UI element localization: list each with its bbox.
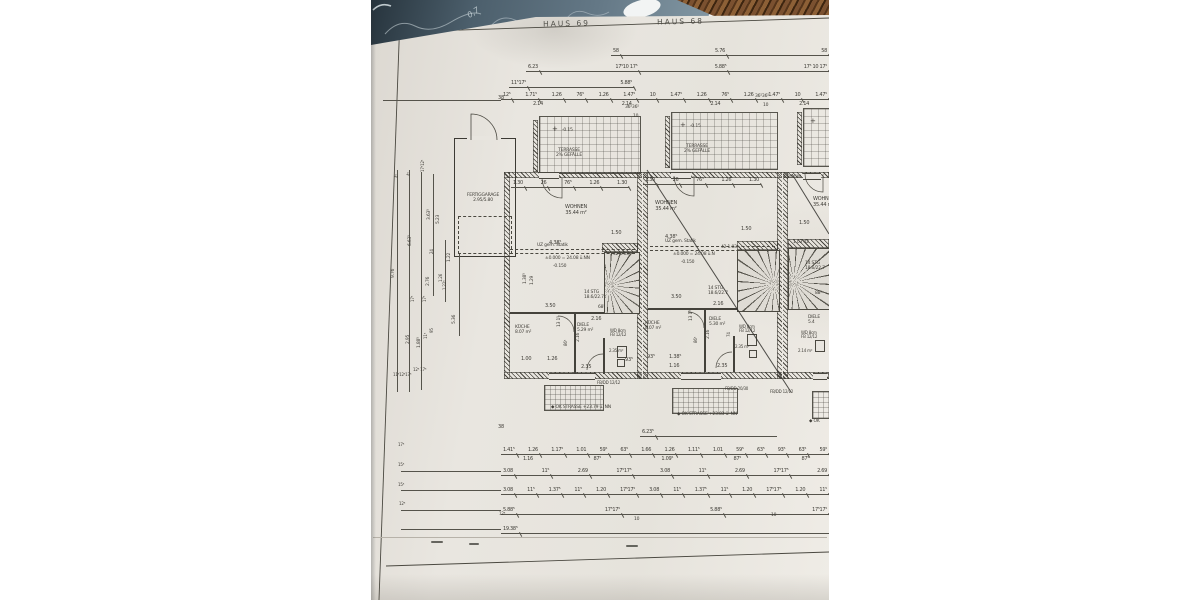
- plan-note: 1.38⁵: [523, 273, 528, 284]
- plan-note: 17⁵: [398, 443, 404, 447]
- plan-note: -0.15: [690, 124, 701, 129]
- plan-note: 13 1⁵: [557, 316, 562, 327]
- plan-note: TERRASSE 2% GEFÄLLE: [675, 144, 719, 154]
- plan-note: +: [810, 118, 816, 126]
- plan-note: 1.50: [741, 227, 751, 233]
- dimension-extension-line: [383, 100, 501, 101]
- dim-row: 19.38⁵: [501, 526, 829, 535]
- plan-note: ±0.000 = 24.08 ü.NN: [545, 256, 590, 261]
- dim-row: 1.302676⁵1.261.30: [643, 177, 761, 186]
- plan-note: 3.50: [545, 304, 555, 310]
- plan-note: UZ gem. Statik: [665, 239, 696, 244]
- plan-note: FERTIGGARAGE 2.95/5.80: [457, 193, 509, 203]
- plan-note: 13 1⁵: [689, 310, 694, 321]
- plan-note: ◆ OK STRASSE +23.79 ü. NN: [551, 405, 611, 410]
- dim-row: 1.41⁵1.261.17⁵1.0159⁵63⁵1.661.261.11⁵1.0…: [501, 447, 829, 456]
- plan-note: KÜCHE 8.07 m²: [645, 321, 661, 331]
- dimension-extension-line: [445, 240, 446, 302]
- dimension-extension-line: [421, 172, 422, 390]
- plan-note: DIELE 5.4: [808, 315, 820, 325]
- plan-note: ◆ OK STRASSE +23.83 ü. NN: [677, 412, 737, 417]
- plan-note: 88⁵: [815, 291, 822, 296]
- plan-note: -0.150: [553, 264, 566, 269]
- plan-note: 2.35 m²: [609, 349, 623, 353]
- plan-note: DIELE 5.29 m²: [577, 323, 593, 333]
- floorplan-photo: 0,7 HAUS 69 HAUS 68: [371, 0, 829, 600]
- pencil-smudge: [469, 543, 479, 545]
- dim-row: 1.1687⁵1.09⁵87⁵87⁵: [521, 456, 811, 465]
- plan-note: 10: [634, 517, 639, 522]
- plan-note: WOHNEN 35.44 m²: [645, 201, 687, 212]
- plan-note: 12⁵ 17⁵: [413, 368, 426, 372]
- plan-note: 14 STG 18.6/22.7: [805, 261, 825, 271]
- plan-note: 5.36: [452, 315, 457, 324]
- plan-note: 10: [771, 513, 776, 518]
- plan-note: 2.16: [591, 317, 601, 323]
- plan-note: 12⁵: [399, 502, 405, 506]
- plan-note: 3.63⁵: [427, 209, 432, 220]
- dimension-extension-line: [401, 490, 501, 491]
- plan-note: 17⁵: [411, 296, 415, 302]
- plan-note: 1.22⁵: [443, 280, 447, 290]
- dimension-extension-line: [433, 174, 434, 296]
- plan-note: 14 STG 18.6/22.7: [584, 290, 604, 300]
- plan-note: 86⁵: [564, 340, 568, 346]
- plan-note: 1.38⁵: [669, 355, 681, 361]
- plan-note: 2.16: [706, 330, 711, 339]
- plan-note: 1.16: [669, 364, 679, 370]
- plan-note: 1.00: [521, 357, 531, 363]
- pencil-smudge: [626, 545, 638, 547]
- screenshot-canvas: 0,7 HAUS 69 HAUS 68: [0, 0, 1200, 600]
- plan-note: WOHNEN 35.44 m²: [555, 205, 597, 216]
- plan-note: 68⁵: [598, 305, 605, 310]
- dim-row: 12⁵1.71⁵1.2676⁵1.261.47⁵101.47⁵1.2676⁵1.…: [501, 92, 829, 101]
- paper-fold-line: [373, 537, 827, 538]
- plan-note: 38: [498, 96, 504, 102]
- plan-note: TERRASSE 2% GEFÄLLE: [547, 148, 591, 158]
- plan-note: 42 1.03: [721, 245, 737, 250]
- plan-note: 2.14 m²: [798, 349, 812, 353]
- plan-note: FB/DD 12/12: [770, 390, 793, 394]
- plan-note: 1.22: [447, 253, 452, 262]
- plan-note: 93⁵: [625, 358, 633, 364]
- dim-row: 3.0811⁵2.6917⁵17⁵3.0811⁵2.6917⁵17⁵2.69: [501, 468, 829, 477]
- plan-note: UZ gem. Statik: [537, 243, 568, 248]
- plan-note: ±0.000 = 24.08 ü.N: [673, 252, 715, 257]
- dimension-extension-line: [409, 170, 410, 392]
- dimension-extension-line: [401, 529, 501, 530]
- plan-note: 6.63⁵: [408, 235, 413, 246]
- plan-note: 14 STG 18.6/22.7: [708, 286, 728, 296]
- pencil-smudge: [431, 541, 443, 543]
- plan-note: 11⁵: [424, 333, 428, 339]
- plan-note: 2.35: [717, 364, 727, 370]
- plan-note: 2.35 m²: [735, 345, 749, 349]
- dim-row: 11⁵17⁵5.88⁵: [509, 80, 634, 89]
- plan-note: 17⁵: [423, 296, 427, 302]
- plan-note: 93⁵: [647, 355, 655, 361]
- plan-paper: HAUS 69 HAUS 68: [371, 0, 829, 600]
- plan-note: 10: [633, 114, 638, 119]
- dim-row: 2.142.142.142.14: [531, 101, 811, 110]
- dim-row: 6.23⁵: [640, 429, 777, 438]
- plan-note: +: [552, 126, 558, 134]
- dim-row: 6.2317⁵10 17⁵5.88⁵17⁵ 10 17⁵: [526, 64, 829, 73]
- plan-note: 9.76: [391, 269, 396, 278]
- dimension-extension-line: [401, 471, 501, 472]
- plan-note: 1.50: [611, 231, 621, 237]
- dimension-extension-line: [459, 254, 460, 336]
- dim-row: 5.88⁵17⁵17⁵5.88⁵17⁵17⁵: [501, 507, 829, 516]
- plan-note: 1.26: [547, 357, 557, 363]
- plan-note: WD 8cm FB 12/12: [801, 331, 817, 340]
- plan-note: WOHNEN 35.44 m²: [813, 197, 829, 208]
- plan-note: WD 8cm FB 12/12: [739, 325, 755, 334]
- dimension-extension-line: [401, 510, 501, 511]
- plan-note: 1.50: [799, 221, 809, 227]
- plan-note: FB/DD 20/30: [725, 387, 748, 391]
- dim-row: 585.7658: [611, 48, 829, 57]
- plan-note: 36⁵36⁵: [625, 105, 639, 110]
- plan-note: 11⁵12⁵17⁵: [393, 373, 411, 377]
- plan-note: 15⁵: [398, 463, 404, 467]
- plan-note: 10: [763, 103, 768, 108]
- dim-row: 1.302676⁵1.261.30: [511, 180, 629, 189]
- plan-note: 1.29: [530, 276, 535, 285]
- plan-note: KÜCHE 8.07 m²: [515, 325, 531, 335]
- dim-row: 3.0811⁵1.37⁵11⁵1.2017⁵17⁵3.0811⁵1.37⁵11⁵…: [501, 487, 829, 496]
- plan-note: 2.76: [426, 277, 431, 286]
- plan-note: 38: [498, 425, 504, 431]
- plan-note: 1.03 42: [793, 240, 809, 245]
- plan-note: 2.35: [581, 365, 591, 371]
- plan-note: -0.15: [562, 128, 573, 133]
- plan-note: DIELE 5.30 m²: [709, 317, 725, 327]
- plan-note: 1.30 GW: [783, 175, 801, 180]
- plan-note: 5.23: [436, 215, 441, 224]
- plan-note: 15⁵: [398, 483, 404, 487]
- plan-note: 2.16: [713, 302, 723, 308]
- plan-note: -0.150: [681, 260, 694, 265]
- plan-note: 1.88⁵: [417, 337, 422, 348]
- plan-note: 2.16: [576, 333, 581, 342]
- plan-note: 36⁵36⁵: [755, 94, 769, 99]
- plan-note: WD 8cm FB 12/12: [610, 329, 626, 338]
- plan-note: 17⁵12⁵: [421, 160, 425, 172]
- plan-note: 42 1.03: [613, 252, 629, 257]
- plan-note: 12⁵: [499, 512, 505, 516]
- plan-note: 86⁵: [694, 337, 698, 343]
- plan-note: +: [680, 122, 686, 130]
- plan-note: 4⁵: [395, 174, 399, 178]
- plan-note: 2.95: [406, 335, 411, 344]
- plan-note: ◆ OK: [809, 419, 820, 424]
- plan-note: 74: [727, 332, 731, 337]
- plan-note: 95: [430, 328, 434, 333]
- plan-note: 4⁵: [407, 172, 411, 176]
- dimension-extension-line: [397, 170, 398, 392]
- plan-note: 24: [430, 249, 434, 254]
- plan-note: 3.50: [671, 295, 681, 301]
- plan-note: FB/DD 12/12: [597, 381, 620, 385]
